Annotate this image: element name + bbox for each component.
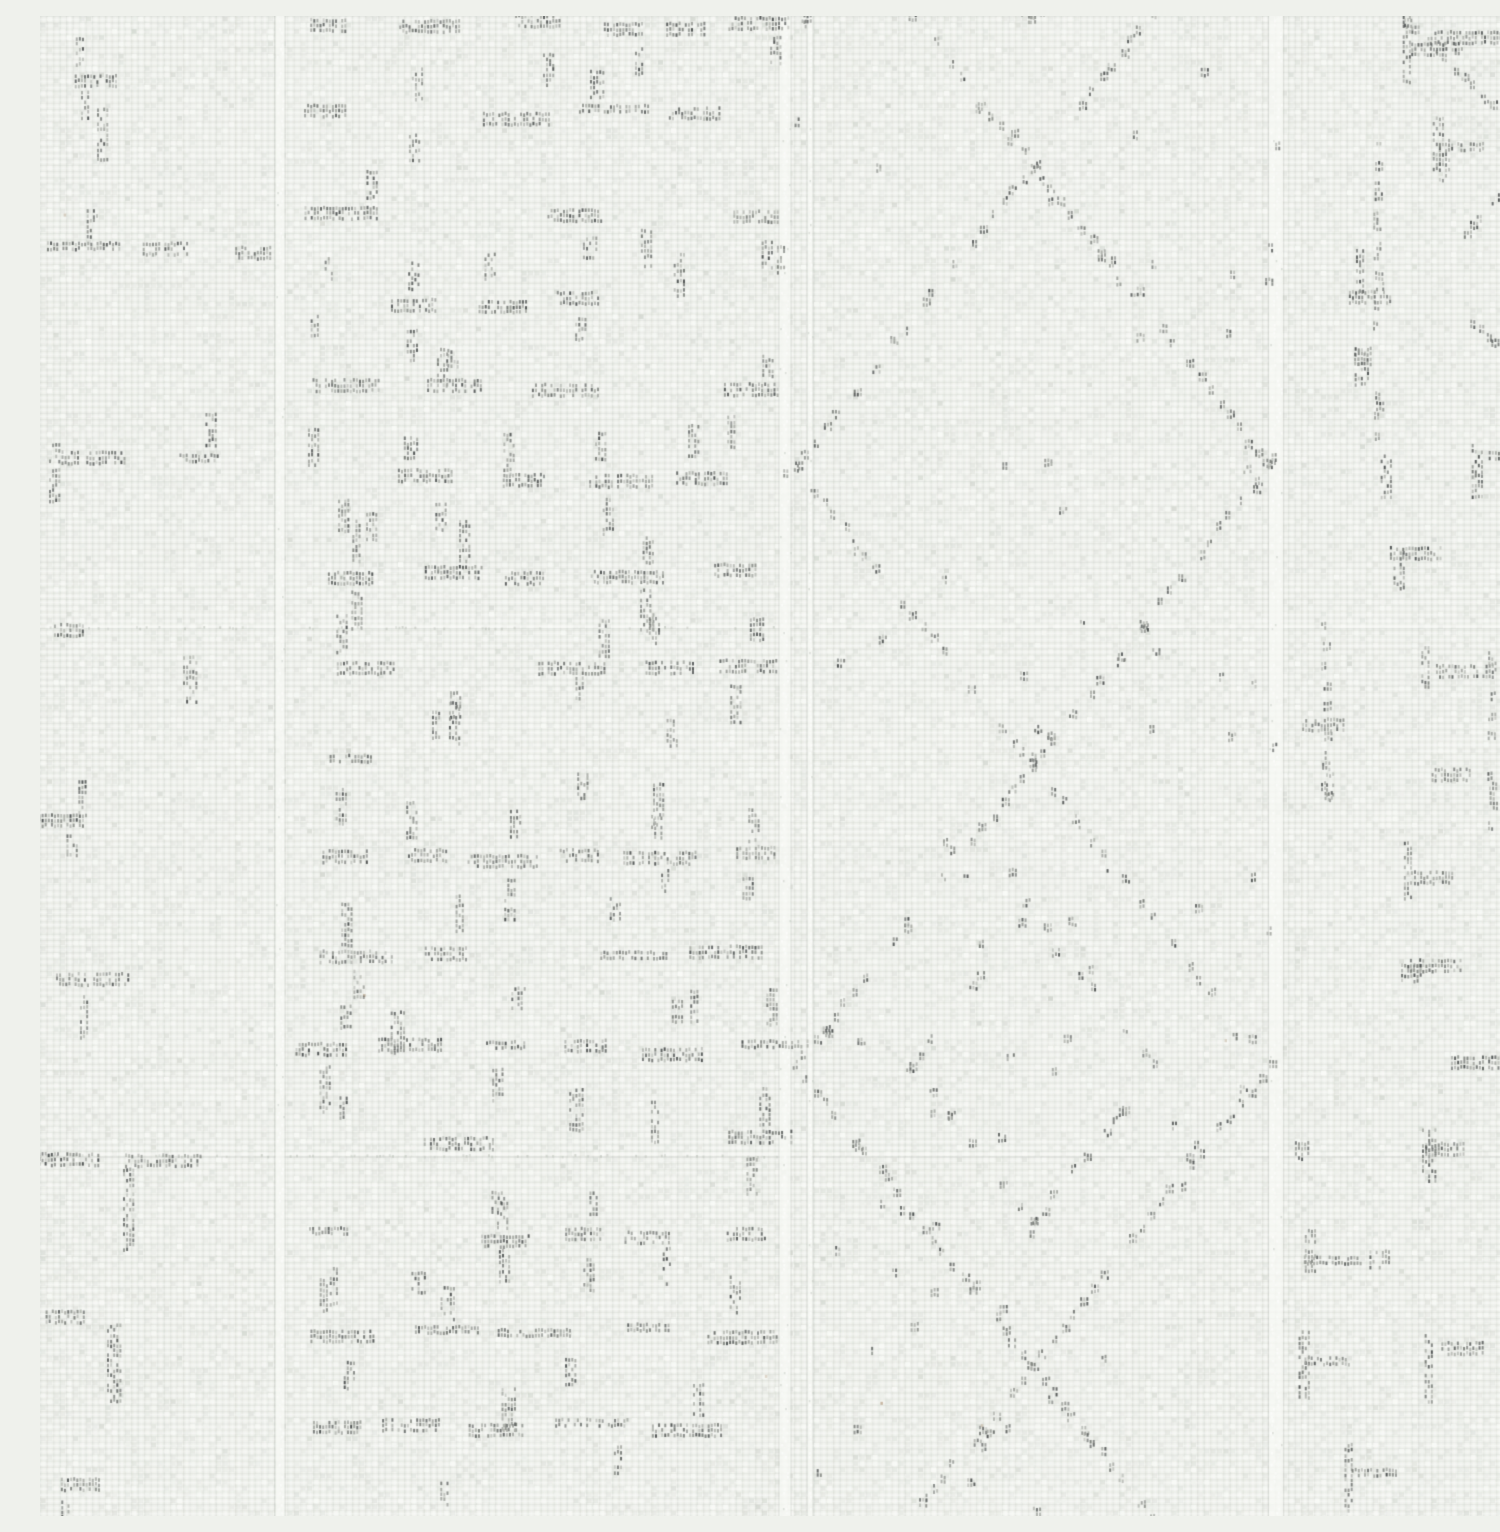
fabric-texture-canvas <box>40 16 1500 1516</box>
fabric-swatch-photo <box>40 16 1500 1516</box>
